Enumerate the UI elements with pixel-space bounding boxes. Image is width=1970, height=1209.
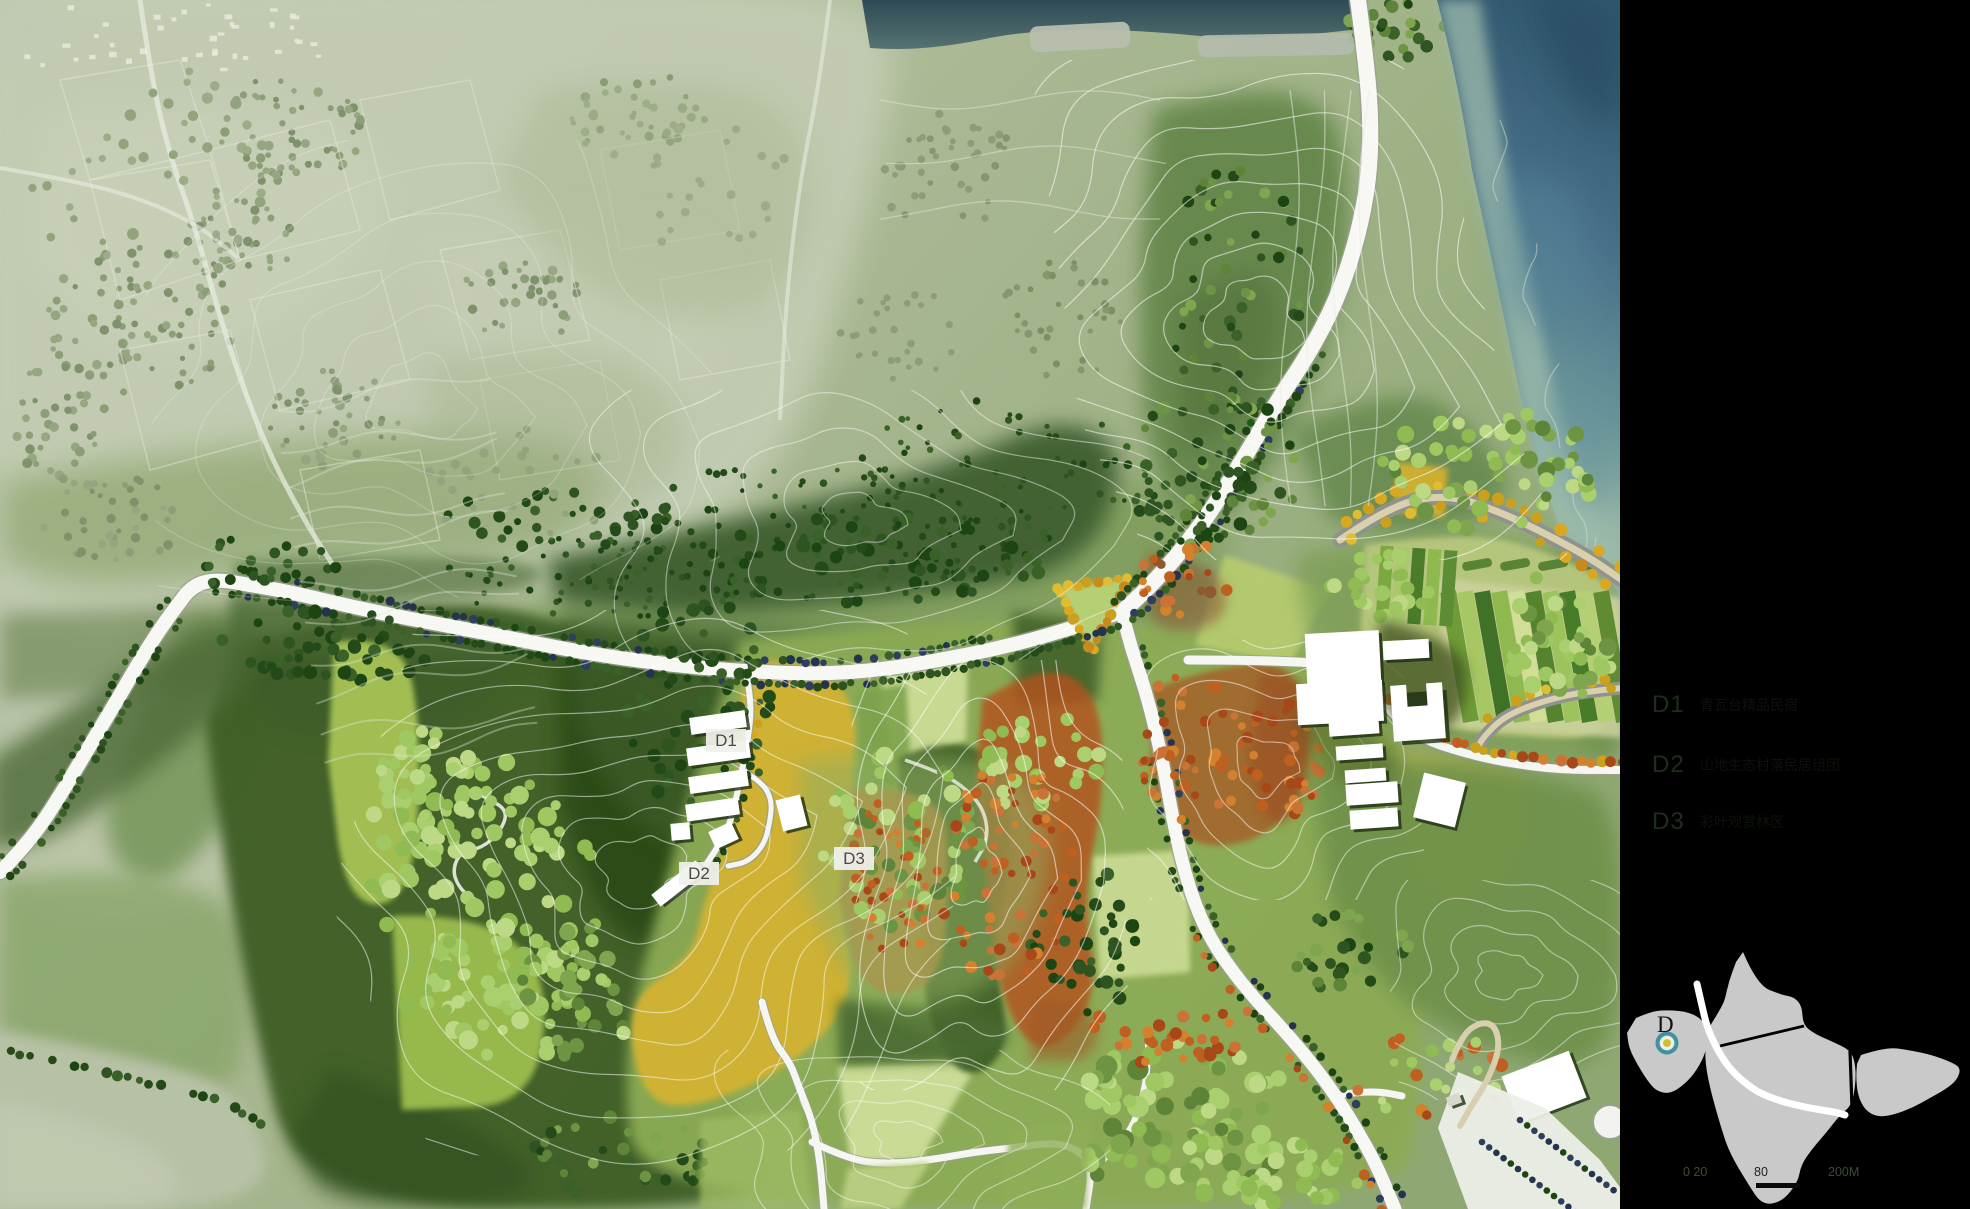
svg-text:D1: D1 (715, 731, 737, 750)
svg-text:200M: 200M (1828, 1165, 1859, 1179)
svg-text:D1: D1 (1652, 691, 1685, 718)
svg-text:D3: D3 (1652, 808, 1685, 835)
svg-text:0 20: 0 20 (1683, 1165, 1707, 1179)
svg-text:彩叶观赏林区: 彩叶观赏林区 (1700, 814, 1784, 830)
svg-text:D2: D2 (1652, 751, 1685, 778)
svg-text:D2: D2 (688, 864, 710, 883)
svg-text:80: 80 (1754, 1165, 1768, 1179)
svg-text:D3: D3 (843, 849, 865, 868)
svg-text:青瓦台精品民宿: 青瓦台精品民宿 (1700, 697, 1798, 713)
svg-text:D: D (1657, 1012, 1674, 1037)
svg-text:山地生态村落民居组团: 山地生态村落民居组团 (1700, 757, 1840, 773)
